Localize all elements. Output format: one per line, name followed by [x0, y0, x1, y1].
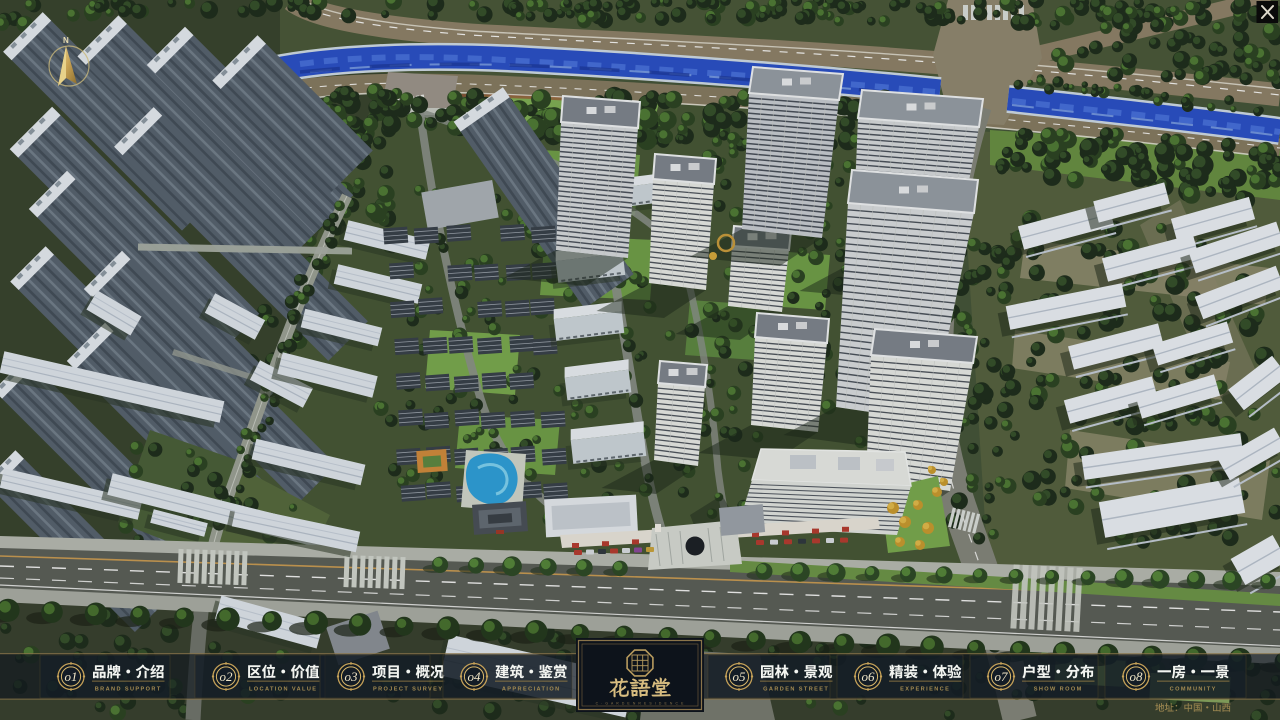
svg-text:BRAND SUPPORT: BRAND SUPPORT — [95, 687, 162, 693]
svg-text:PROJECT SURVEY: PROJECT SURVEY — [373, 687, 443, 693]
svg-text:EXPERIENCE: EXPERIENCE — [900, 687, 950, 693]
svg-text:SHOW ROOM: SHOW ROOM — [1034, 687, 1083, 693]
svg-text:APPRECIATION: APPRECIATION — [502, 687, 561, 693]
svg-text:o1: o1 — [65, 669, 78, 684]
svg-text:o3: o3 — [345, 669, 359, 684]
svg-text:o4: o4 — [468, 669, 482, 684]
svg-text:o2: o2 — [220, 669, 234, 684]
svg-text:GARDEN STREET: GARDEN STREET — [763, 687, 829, 693]
svg-text:o6: o6 — [862, 669, 876, 684]
svg-text:o8: o8 — [1130, 669, 1144, 684]
svg-text:LOCATION VALUE: LOCATION VALUE — [249, 687, 318, 693]
svg-text:COMMUNITY: COMMUNITY — [1170, 687, 1217, 693]
svg-text:o5: o5 — [733, 669, 747, 684]
svg-text:C · G A R D E N R E S I D E: C · G A R D E N R E S I D E N C E — [596, 702, 685, 706]
svg-text:N: N — [63, 36, 69, 45]
svg-text:o7: o7 — [995, 669, 1009, 684]
